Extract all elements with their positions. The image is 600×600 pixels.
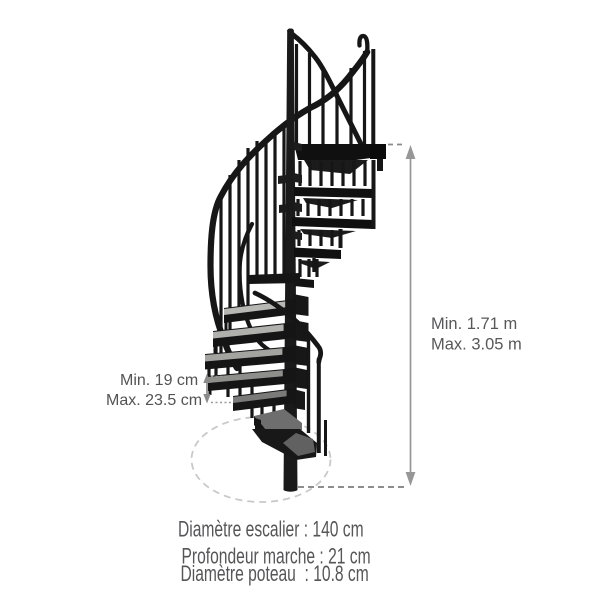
svg-text:Diamètre poteau : 10.8 cm: Diamètre poteau : 10.8 cm — [180, 563, 368, 587]
svg-text:Min. 19 cm: Min. 19 cm — [120, 372, 198, 389]
svg-text:Diamètre escalier : 140 cm: Diamètre escalier : 140 cm — [178, 518, 364, 542]
svg-text:Max. 23.5 cm: Max. 23.5 cm — [106, 392, 202, 409]
svg-text:Max. 3.05 m: Max. 3.05 m — [431, 336, 522, 354]
svg-text:Min. 1.71 m: Min. 1.71 m — [431, 315, 517, 333]
